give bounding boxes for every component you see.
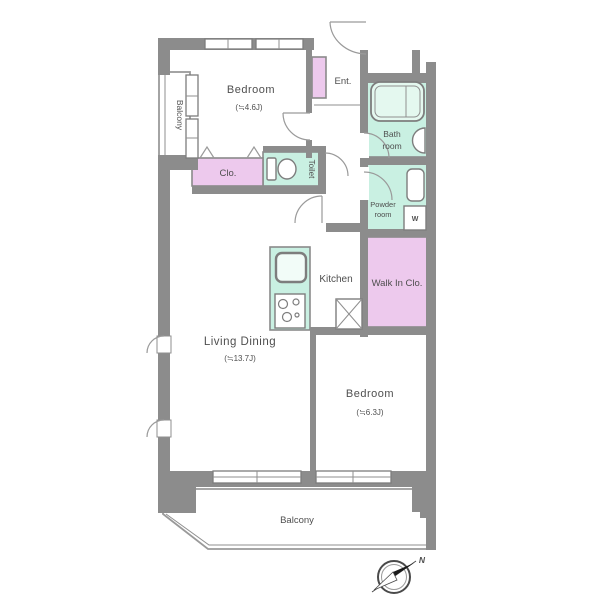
powder-sink-icon — [407, 169, 424, 201]
balcony-bottom-label: Balcony — [280, 515, 314, 526]
washer-label: W — [412, 216, 419, 223]
closet-folding-door-icon — [200, 147, 214, 158]
compass-north-label: N — [419, 555, 426, 565]
bathtub-icon — [371, 82, 424, 121]
powder-label-2: room — [374, 210, 391, 219]
entrance-label: Ent. — [335, 76, 352, 87]
kitchen-sink-icon — [276, 253, 306, 282]
bedroom-right-label: Bedroom — [346, 388, 394, 400]
entrance-cabinet — [312, 57, 326, 98]
duct-shaft-icon — [336, 299, 362, 329]
bathroom-label-1: Bath — [383, 129, 401, 139]
bedroom-door-arc — [283, 113, 310, 140]
bedroom-top-label: Bedroom — [227, 84, 275, 96]
bedroom-top-area: (≒4.6J) — [235, 103, 262, 112]
living-dining-label: Living Dining — [204, 336, 276, 348]
balcony-left-label: Balcony — [175, 100, 185, 131]
walk-in-closet-label: Walk In Clo. — [372, 278, 423, 289]
bedroom-right-area: (≒6.3J) — [356, 408, 383, 417]
living-door-arc — [295, 196, 322, 223]
floor-plan-page: Bedroom (≒4.6J) Ent. Bath room Toilet Cl… — [0, 0, 601, 601]
compass-icon: N — [372, 555, 426, 593]
toilet-bowl-icon — [278, 159, 296, 179]
toilet-door-arc — [325, 153, 348, 176]
bathroom-label-2: room — [382, 141, 401, 151]
toilet-label: Toilet — [307, 160, 316, 179]
kitchen-label: Kitchen — [319, 274, 352, 285]
closet-label: Clo. — [220, 168, 237, 179]
powder-label-1: Powder — [370, 200, 396, 209]
closet-folding-door-icon — [247, 147, 261, 158]
living-dining-area: (≒13.7J) — [224, 354, 256, 363]
entrance-door-arc — [330, 22, 366, 54]
toilet-tank-icon — [267, 158, 276, 180]
floor-plan-drawing: Bedroom (≒4.6J) Ent. Bath room Toilet Cl… — [0, 0, 601, 601]
stove-icon — [275, 294, 305, 328]
